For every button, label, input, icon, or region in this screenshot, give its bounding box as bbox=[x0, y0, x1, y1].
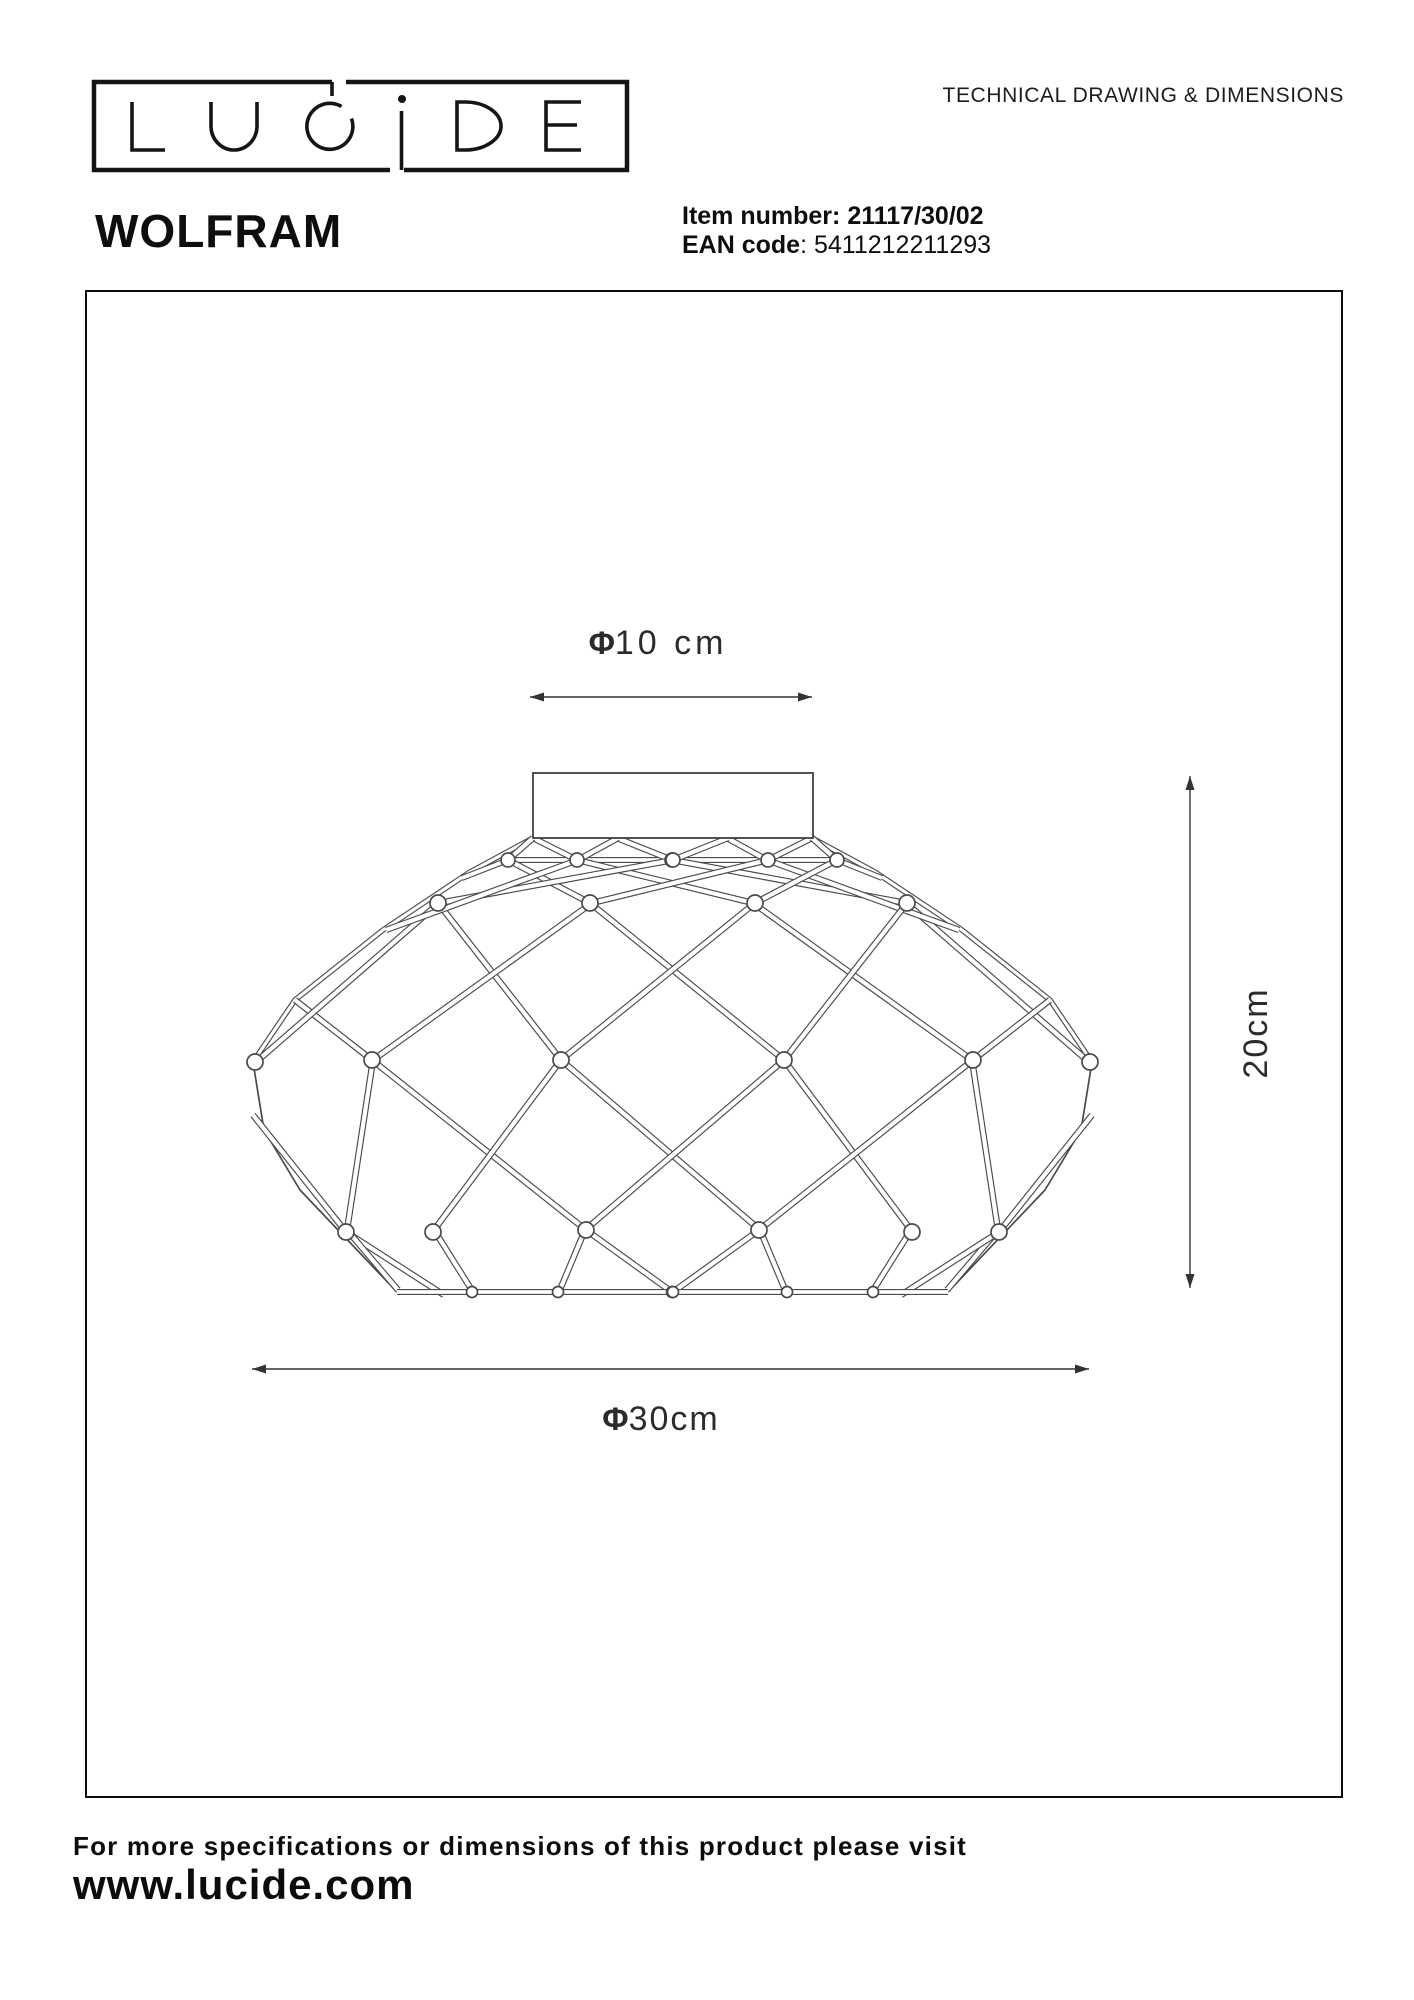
phi-symbol: Φ bbox=[589, 625, 615, 661]
technical-drawing-page: { "header": { "doc_title": "TECHNICAL DR… bbox=[0, 0, 1414, 2000]
footer-website-link[interactable]: www.lucide.com bbox=[73, 1861, 415, 1909]
footer-note: For more specifications or dimensions of… bbox=[73, 1831, 967, 1862]
phi-symbol: Φ bbox=[602, 1401, 628, 1437]
lamp-wireframe bbox=[247, 773, 1098, 1298]
lamp-technical-drawing bbox=[0, 0, 1414, 2000]
dimension-value: 30cm bbox=[629, 1400, 720, 1438]
dimension-label-height: 20cm bbox=[1237, 933, 1279, 1133]
dimension-value: 10 cm bbox=[615, 624, 728, 662]
dimension-label-bottom-diameter: Φ30cm bbox=[531, 1400, 791, 1439]
mount-plate bbox=[533, 773, 813, 838]
dimension-value: 20cm bbox=[1237, 987, 1275, 1078]
dimension-label-top-diameter: Φ10 cm bbox=[528, 624, 788, 663]
